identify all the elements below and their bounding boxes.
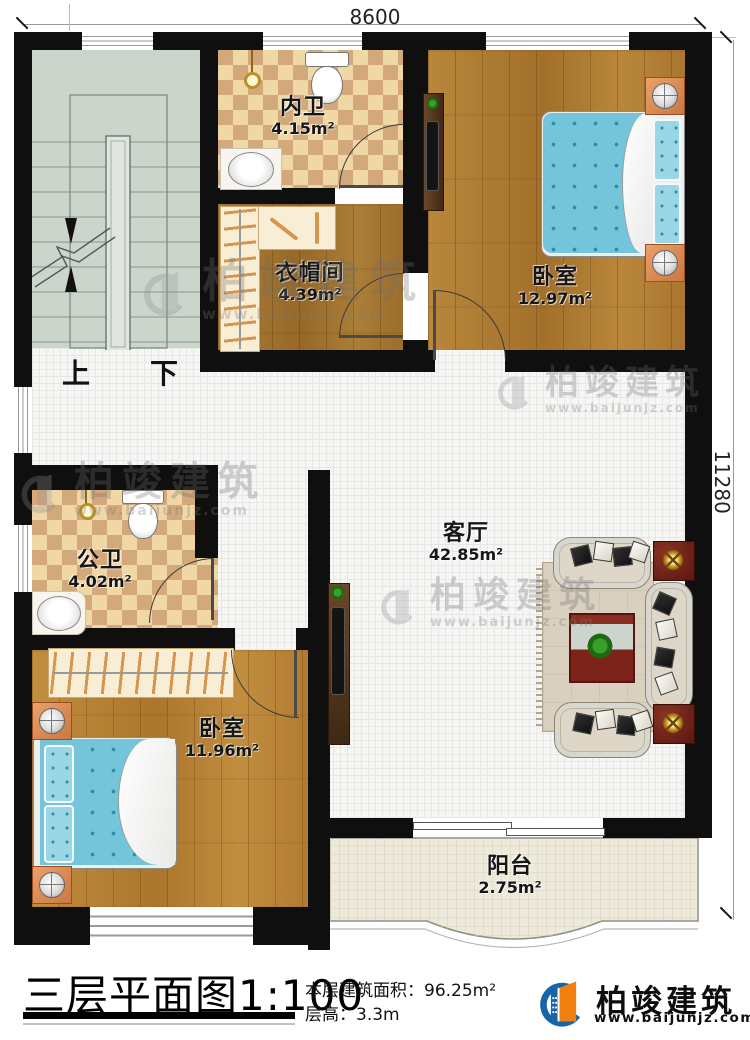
room-area: 4.15m²: [258, 120, 348, 137]
sink-basin: [228, 152, 274, 187]
room-label-gongwei: 公卫 4.02m²: [55, 549, 145, 590]
room-label-bedroom-top: 卧室 12.97m²: [505, 266, 605, 307]
toilet-tank: [122, 490, 164, 504]
cloakroom-wardrobe-left: [220, 206, 260, 352]
nightstand-lamp-icon: [39, 708, 65, 734]
gongwei-door-leaf: [211, 558, 214, 620]
sofa-cushion: [595, 709, 616, 730]
bedroom-top-door-leaf: [433, 290, 436, 360]
wall-gongwei-right: [195, 465, 218, 558]
tv-icon: [332, 608, 344, 694]
floor-area-value: 96.25m²: [424, 981, 496, 1001]
floor-area-label: 本层建筑面积：: [305, 981, 424, 1001]
window-bedroom-top: [486, 32, 629, 50]
sofa-cushion: [655, 618, 678, 641]
room-label-cloakroom: 衣帽间 4.39m²: [258, 262, 362, 303]
rug-fringe: [536, 566, 542, 726]
room-name: 客厅: [400, 522, 532, 546]
room-name: 卧室: [172, 718, 272, 742]
floor-plan-canvas: 8600 11280: [0, 0, 750, 1040]
sofa-cushion: [653, 646, 675, 668]
side-table-lamp-icon: [663, 713, 683, 733]
plant-icon: [426, 97, 439, 110]
stairs-up-label: 上: [62, 352, 90, 392]
extension-line: [69, 4, 70, 31]
wall-living-left: [308, 470, 330, 950]
stairs-down-label: 下: [150, 352, 178, 392]
bed-pillow: [44, 745, 74, 803]
room-label-living: 客厅 42.85m²: [400, 522, 532, 563]
nightstand-lamp-icon: [39, 872, 65, 898]
side-table-lamp-icon: [663, 550, 683, 570]
window-gongwei-left: [14, 525, 32, 592]
window-bedroom-bottom: [90, 907, 253, 945]
room-area: 11.96m²: [172, 742, 272, 759]
toilet-bowl: [128, 503, 158, 539]
wall-neiwei-bottom: [218, 188, 335, 204]
bed-pillow: [653, 183, 681, 245]
dimension-tick: [720, 907, 733, 920]
room-name: 内卫: [258, 96, 348, 120]
cloakroom-door-leaf: [339, 335, 403, 338]
room-name: 衣帽间: [258, 262, 362, 286]
bedroom-bottom-door-leaf: [294, 650, 297, 717]
dimension-width-label: 8600: [340, 5, 410, 29]
balcony-sliding-door: [413, 822, 603, 836]
nightstand-lamp-icon: [652, 83, 678, 109]
pendant-lamp-icon: [79, 503, 96, 520]
floor-height-value: 3.3m: [356, 1005, 400, 1025]
room-area: 42.85m²: [400, 546, 532, 563]
lamp-cord: [251, 50, 253, 73]
toilet-tank: [305, 52, 349, 67]
wall-gongwei-top: [14, 465, 218, 490]
room-name: 卧室: [505, 266, 605, 290]
room-name: 公卫: [55, 549, 145, 573]
wardrobe-rod: [239, 209, 241, 349]
sliding-panel: [413, 822, 512, 830]
room-area: 4.02m²: [55, 573, 145, 590]
floor-height-line: 层高：3.3m: [305, 1000, 400, 1025]
wall-balcony-left: [330, 818, 413, 838]
dimension-height-label: 11280: [710, 437, 734, 527]
window-neiwei: [263, 32, 362, 50]
room-label-balcony: 阳台 2.75m²: [455, 855, 565, 896]
brand-logo-icon: [536, 970, 592, 1030]
sofa-cushion: [593, 541, 614, 562]
plant-icon: [330, 585, 345, 600]
bed-pillow: [44, 805, 74, 863]
tv-icon: [427, 122, 438, 190]
pendant-lamp-icon: [244, 72, 261, 89]
nightstand-lamp-icon: [652, 250, 678, 276]
room-area: 4.39m²: [258, 286, 362, 303]
floor-area-line: 本层建筑面积：96.25m²: [305, 976, 496, 1001]
room-label-neiwei: 内卫 4.15m²: [258, 96, 348, 137]
wall-stairs-right: [200, 32, 218, 372]
wall-balcony-right: [603, 818, 688, 838]
sink-basin: [37, 596, 81, 631]
room-area: 12.97m²: [505, 290, 605, 307]
coffee-table-plant-icon: [586, 632, 614, 660]
neiwei-door-leaf: [339, 185, 403, 188]
bedroom-bottom-wardrobe: [48, 648, 234, 698]
window-hall-left: [14, 387, 32, 453]
window-stairs: [82, 32, 153, 50]
lamp-cord: [85, 490, 87, 504]
wall-south-bedroom-top-b: [505, 350, 688, 372]
wall-south-bedroom-top-a: [205, 350, 435, 372]
room-label-bedroom-bottom: 卧室 11.96m²: [172, 718, 272, 759]
staircase-detail: [32, 50, 200, 350]
hanger-bar: [315, 212, 319, 244]
brand-url: www.baijunjz.com: [594, 1010, 750, 1026]
title-underline: [23, 1012, 295, 1019]
cloakroom-wardrobe-top: [258, 206, 336, 250]
wardrobe-rod: [52, 672, 228, 674]
hanger-bar: [269, 217, 298, 241]
title-underline-thin: [23, 1023, 295, 1025]
sliding-panel: [506, 828, 605, 836]
bed-pillow: [653, 119, 681, 181]
room-area: 2.75m²: [455, 879, 565, 896]
sofa-cushion: [572, 712, 595, 735]
floor-height-label: 层高：: [305, 1005, 356, 1025]
room-name: 阳台: [455, 855, 565, 879]
